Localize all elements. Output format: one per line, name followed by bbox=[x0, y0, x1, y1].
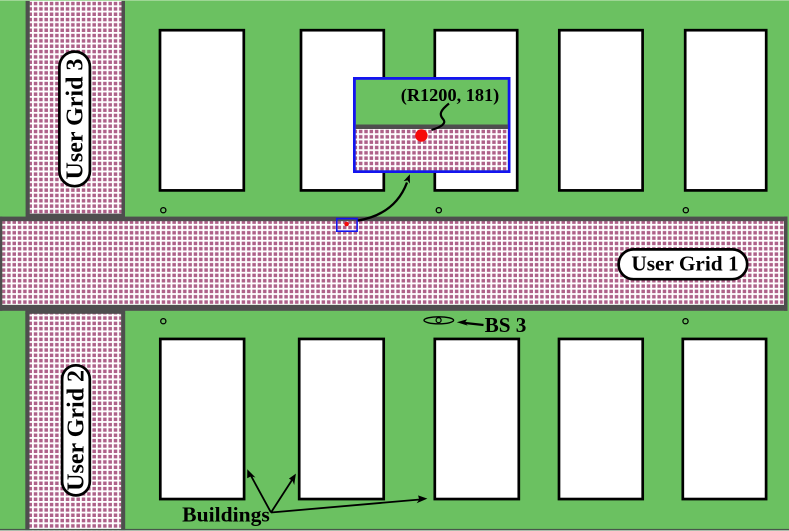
svg-text:Buildings: Buildings bbox=[182, 503, 270, 527]
svg-text:BS 3: BS 3 bbox=[485, 313, 527, 337]
svg-text:User Grid 1: User Grid 1 bbox=[631, 251, 738, 275]
svg-text:User Grid 3: User Grid 3 bbox=[63, 59, 89, 180]
svg-text:User Grid 2: User Grid 2 bbox=[64, 370, 90, 491]
svg-text:(R1200, 181): (R1200, 181) bbox=[401, 85, 500, 106]
